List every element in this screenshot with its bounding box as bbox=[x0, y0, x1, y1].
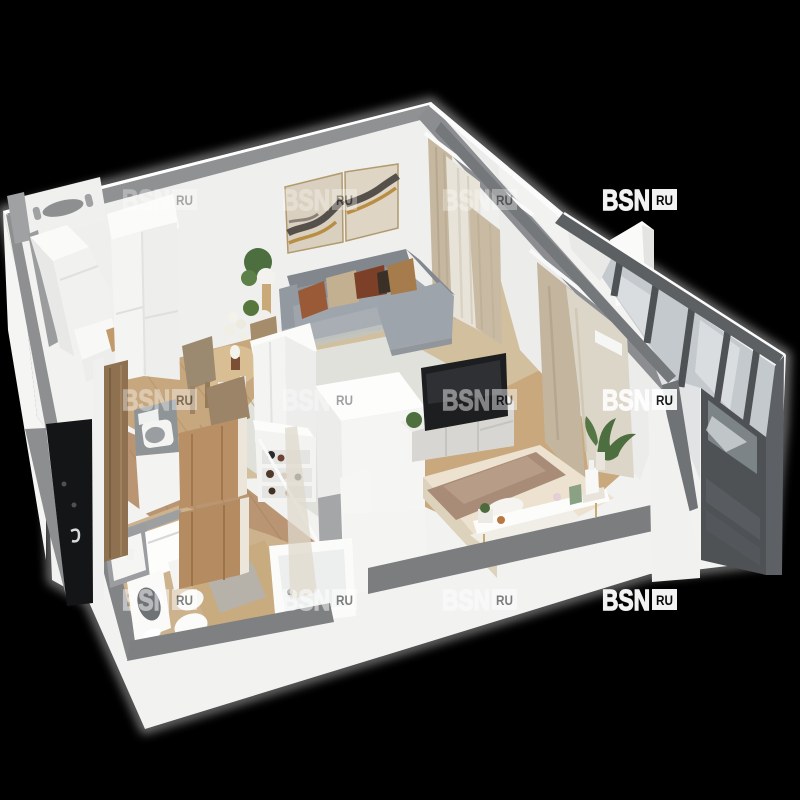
svg-text:RU: RU bbox=[656, 193, 673, 208]
svg-text:BSN: BSN bbox=[282, 585, 330, 617]
svg-text:RU: RU bbox=[496, 593, 513, 608]
svg-text:RU: RU bbox=[176, 193, 193, 208]
svg-text:BSN: BSN bbox=[122, 185, 170, 217]
svg-text:RU: RU bbox=[336, 393, 353, 408]
svg-text:RU: RU bbox=[336, 593, 353, 608]
svg-text:BSN: BSN bbox=[602, 585, 650, 617]
svg-text:BSN: BSN bbox=[122, 585, 170, 617]
svg-text:BSN: BSN bbox=[282, 385, 330, 417]
svg-text:BSN: BSN bbox=[442, 585, 490, 617]
svg-text:RU: RU bbox=[656, 393, 673, 408]
svg-text:RU: RU bbox=[176, 593, 193, 608]
svg-text:BSN: BSN bbox=[442, 185, 490, 217]
svg-text:BSN: BSN bbox=[602, 385, 650, 417]
svg-text:RU: RU bbox=[176, 393, 193, 408]
svg-text:RU: RU bbox=[496, 393, 513, 408]
svg-text:RU: RU bbox=[496, 193, 513, 208]
svg-text:BSN: BSN bbox=[122, 385, 170, 417]
svg-text:RU: RU bbox=[656, 593, 673, 608]
svg-text:BSN: BSN bbox=[442, 385, 490, 417]
svg-text:BSN: BSN bbox=[602, 185, 650, 217]
svg-text:RU: RU bbox=[336, 193, 353, 208]
svg-text:BSN: BSN bbox=[282, 185, 330, 217]
